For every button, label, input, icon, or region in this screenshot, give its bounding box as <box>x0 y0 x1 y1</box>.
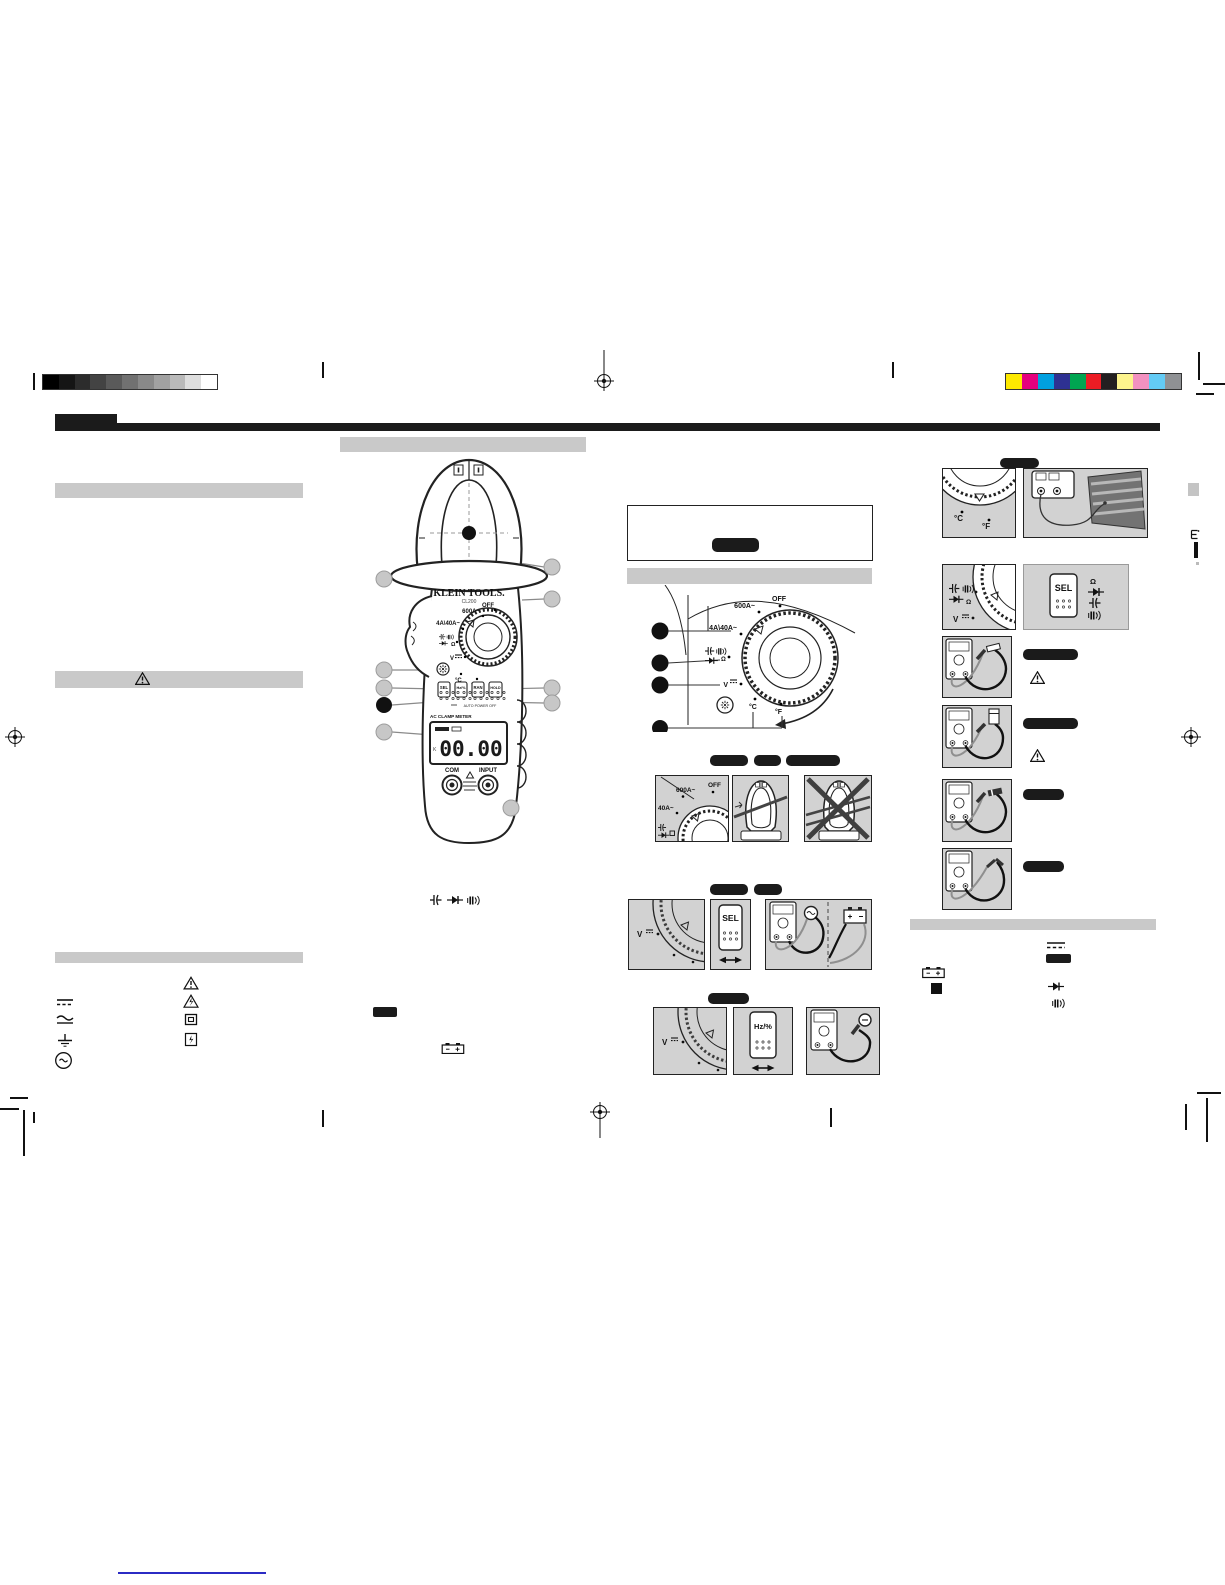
callout-bullet <box>652 677 669 694</box>
edge-dot <box>1196 562 1199 565</box>
diode-symbol-icon <box>1047 981 1067 992</box>
capacitor-icon <box>1089 598 1101 608</box>
registration-target-bottom <box>588 1098 612 1140</box>
header-rule <box>55 423 1160 431</box>
brand-text: KLEIN TOOLS. <box>433 588 505 599</box>
panel-continuity-measure <box>942 848 1012 910</box>
dc-symbol-icon <box>56 996 74 1008</box>
diode-component-icon <box>988 788 1003 797</box>
continuity-icon <box>1089 611 1101 620</box>
svg-text:SEL: SEL <box>440 685 449 690</box>
warning-icon <box>183 976 199 990</box>
dc-mark-icon <box>730 680 737 683</box>
hand-guard <box>391 561 547 591</box>
electric-shock-box-icon <box>184 1032 198 1047</box>
mini-meter-icon <box>946 708 972 748</box>
rotary-dial <box>459 608 517 666</box>
callout-circle <box>544 695 560 711</box>
section-bar-warnings <box>55 483 303 498</box>
volts-label: V <box>953 615 959 624</box>
input-jacks: COM INPUT <box>443 768 498 795</box>
continuity-symbol-icon <box>1051 997 1068 1010</box>
dial-arcs <box>653 900 704 963</box>
section-bar-operation <box>627 568 872 584</box>
panel-current-dial: 600A~ OFF 40A~ <box>655 775 729 842</box>
warning-icon <box>135 672 150 685</box>
ground-symbol-icon <box>56 1033 74 1048</box>
continuity-icon <box>468 896 480 905</box>
jack-fine-print <box>464 789 475 791</box>
battery-under-test-icon <box>844 907 866 923</box>
600a-label: 600A~ <box>676 787 696 794</box>
600a-label: 600A~ <box>734 603 755 610</box>
dc-mark-icon <box>962 615 969 618</box>
panel-resistance-measure <box>942 636 1012 698</box>
heading-bar <box>754 884 782 895</box>
panel-freq-measure <box>806 1007 880 1075</box>
off-label: OFF <box>772 596 787 603</box>
com-jack <box>443 776 462 795</box>
callout-circle <box>376 724 392 740</box>
corner-mark <box>1206 1098 1208 1142</box>
panel-volt-measure <box>765 899 872 970</box>
dial-off-label: OFF <box>482 603 494 609</box>
function-symbols-row <box>429 893 481 908</box>
warning-icon <box>1030 749 1045 762</box>
degf-label: °F <box>982 522 990 531</box>
edge-bar <box>1194 542 1198 558</box>
corner-mark <box>1198 352 1200 380</box>
resistor-icon <box>986 643 1000 651</box>
jack-fine-print <box>463 781 476 783</box>
corner-mark <box>1203 383 1225 385</box>
heading-bar <box>1023 861 1064 872</box>
4a40a-label: 4A\40A~ <box>709 625 737 632</box>
ohm-label: Ω <box>1090 577 1096 586</box>
lcd-value: 00.00 <box>439 737 502 761</box>
diode-icon <box>447 896 463 904</box>
model-text: CL200 <box>462 599 477 605</box>
svg-text:HOLD: HOLD <box>490 686 501 690</box>
corner-mark <box>0 1108 19 1110</box>
section-bar-symbols <box>55 952 303 963</box>
panel-hz-button: Hz/% <box>733 1007 793 1075</box>
volts-label: V <box>723 682 728 689</box>
corner-mark <box>1196 393 1214 395</box>
heading-bar <box>786 755 840 766</box>
off-label: OFF <box>708 782 721 789</box>
registration-target-left <box>2 723 28 751</box>
dial-arcs <box>678 1008 726 1071</box>
heading-bar <box>710 755 748 766</box>
com-label: COM <box>445 768 459 774</box>
heading-bar <box>754 755 781 766</box>
panel-sel-button: SEL <box>710 899 751 970</box>
volts-label: V <box>637 930 643 939</box>
sel-label: SEL <box>1055 583 1073 593</box>
callout-bullet <box>652 655 669 672</box>
sel-button <box>1050 574 1077 617</box>
heading-bar <box>1000 458 1039 468</box>
toggle-arrow-icon <box>719 957 742 963</box>
callout-bullets <box>652 623 669 733</box>
callout-circle <box>544 559 560 575</box>
callout-circle <box>544 591 560 607</box>
battery-icon <box>921 966 947 979</box>
corner-mark <box>33 1112 35 1123</box>
input-jack <box>479 776 498 795</box>
corner-mark <box>23 1110 25 1156</box>
note-heading-bar <box>712 538 759 552</box>
panel-diode-measure <box>942 779 1012 842</box>
dial-volts-label: V <box>450 656 454 662</box>
color-calibration-bar <box>1005 373 1182 390</box>
sel-button <box>719 905 742 950</box>
ohm-cluster-icon <box>658 824 669 838</box>
dial-4a40a-label: 4A\40A~ <box>436 621 460 627</box>
mini-meter-icon <box>946 639 972 679</box>
double-insulation-icon <box>184 1013 198 1026</box>
corner-mark <box>1185 1104 1187 1130</box>
mini-meter-icon <box>811 1010 837 1050</box>
conductor-dot-icon <box>462 526 476 540</box>
corner-mark <box>10 1097 28 1099</box>
heading-bar-small <box>373 1007 397 1017</box>
hz-button <box>750 1012 776 1058</box>
ac-symbol-icon <box>54 1051 73 1070</box>
edge-patch <box>1188 483 1199 496</box>
crop-tick <box>830 1108 832 1127</box>
callout-bullet <box>652 623 669 640</box>
ac-dc-symbol-icon <box>56 1014 74 1026</box>
panel-resistance-dial: Ω V <box>942 564 1016 630</box>
dc-symbol-icon <box>1046 939 1066 951</box>
dial-600a-label: 600A~ <box>462 609 480 615</box>
hz-label: Hz/% <box>754 1022 772 1031</box>
panel-temp-measure <box>1023 468 1148 538</box>
heading-bar-small <box>1046 954 1071 963</box>
sel-label: SEL <box>722 913 739 923</box>
mini-meter-icon <box>946 782 972 822</box>
heading-bar <box>710 884 748 895</box>
svg-text:RAN: RAN <box>473 685 482 690</box>
degc-label: °C <box>954 514 963 523</box>
capacitor-component-icon <box>989 709 999 724</box>
clamp-meter-illustration: KLEIN TOOLS. CL200 OFF 600A~ 4A\40A~ Ω V <box>355 450 585 845</box>
dc-mark-icon <box>671 1038 678 1041</box>
section-bar-cautions <box>55 671 303 688</box>
grayscale-calibration-bar <box>42 374 218 390</box>
backlight-icon <box>439 665 447 673</box>
40a-label: 40A~ <box>658 805 674 812</box>
mini-meter-icon <box>946 851 972 891</box>
battery-icon <box>441 1042 465 1054</box>
panel-jaw-correct <box>732 775 789 842</box>
crop-tick <box>33 373 35 390</box>
diode-icon <box>1088 588 1104 596</box>
capacitor-icon <box>430 895 442 905</box>
note-box <box>627 505 873 561</box>
ohm-label: Ω <box>966 599 971 606</box>
panel-volt-dial-2: V <box>653 1007 727 1075</box>
crop-tick <box>322 362 324 378</box>
dc-mark-icon <box>646 930 653 933</box>
footer-link-line <box>118 1572 266 1574</box>
callout-circle-filled <box>376 697 392 713</box>
black-square-icon <box>931 983 942 994</box>
dial-callout-diagram: OFF 600A~ 4A\40A~ Ω V °C °F <box>625 585 875 732</box>
degf-label: °F <box>775 708 783 716</box>
section-bar-specs <box>910 919 1156 930</box>
heading-bar <box>708 993 749 1004</box>
test-lead-black <box>829 924 846 958</box>
heading-bar <box>1023 718 1078 729</box>
ohm-label: Ω <box>721 657 726 663</box>
lcd-display: K 00.00 <box>430 722 507 764</box>
panel-temp-dial: °C °F <box>942 468 1016 538</box>
jack-fine-print <box>462 785 477 787</box>
arrow-icon <box>735 802 742 808</box>
dial-ohm-label: Ω <box>451 642 456 648</box>
registration-target-top <box>590 350 618 394</box>
display-title: AC CLAMP METER <box>430 714 472 719</box>
warning-icon <box>1030 671 1045 684</box>
input-label: INPUT <box>479 768 497 774</box>
panel-jaw-incorrect <box>804 775 872 842</box>
svg-text:Hz/%: Hz/% <box>456 686 466 690</box>
callout-circle <box>544 680 560 696</box>
high-voltage-icon <box>183 994 199 1008</box>
crop-tick <box>322 1110 324 1127</box>
dial-knob <box>742 610 838 729</box>
callout-circle <box>503 800 519 816</box>
heading-bar <box>1023 789 1064 800</box>
degc-label: °C <box>749 703 757 711</box>
auto-power-off-label: AUTO POWER OFF <box>464 704 497 708</box>
callout-circle <box>376 571 392 587</box>
probe-handle <box>852 1025 859 1034</box>
volts-label: V <box>662 1038 668 1047</box>
lcd-annunciator-icon <box>435 727 449 731</box>
trigger <box>406 596 432 677</box>
toggle-arrow-icon <box>752 1065 775 1071</box>
callout-circle <box>376 662 392 678</box>
callout-circle <box>376 680 392 696</box>
backlight-button <box>437 663 449 675</box>
mini-meter-icon <box>770 902 796 942</box>
probe-handle <box>987 860 995 867</box>
edge-glyph <box>1190 529 1200 540</box>
heading-bar <box>1023 649 1078 660</box>
registration-target-right <box>1178 723 1204 751</box>
manual-page: KLEIN TOOLS. CL200 OFF 600A~ 4A\40A~ Ω V <box>0 0 1225 1585</box>
panel-volt-dial: V <box>628 899 705 970</box>
callout-bullet <box>652 720 668 732</box>
crop-tick <box>892 362 894 378</box>
panel-capacitance-measure <box>942 705 1012 768</box>
backlight-icon <box>717 697 733 713</box>
corner-mark <box>1197 1092 1221 1094</box>
panel-sel-functions: SEL Ω <box>1023 564 1129 630</box>
